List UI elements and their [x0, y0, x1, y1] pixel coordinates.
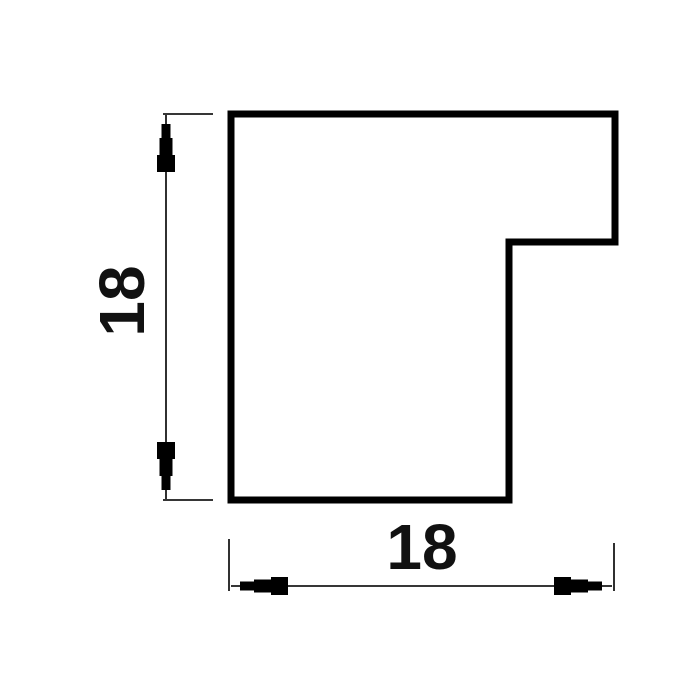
up-arrowhead-icon [157, 124, 175, 172]
profile-drawing: 18 18 [0, 0, 700, 700]
vertical-dimension: 18 [86, 114, 213, 500]
left-arrowhead-icon [240, 577, 288, 595]
horizontal-dimension-label: 18 [386, 511, 457, 583]
horizontal-dimension: 18 [229, 511, 614, 595]
down-arrowhead-icon [157, 442, 175, 490]
profile-outline [231, 114, 615, 500]
vertical-dimension-label: 18 [86, 265, 158, 336]
technical-drawing-canvas: 18 18 [0, 0, 700, 700]
right-arrowhead-icon [554, 577, 602, 595]
